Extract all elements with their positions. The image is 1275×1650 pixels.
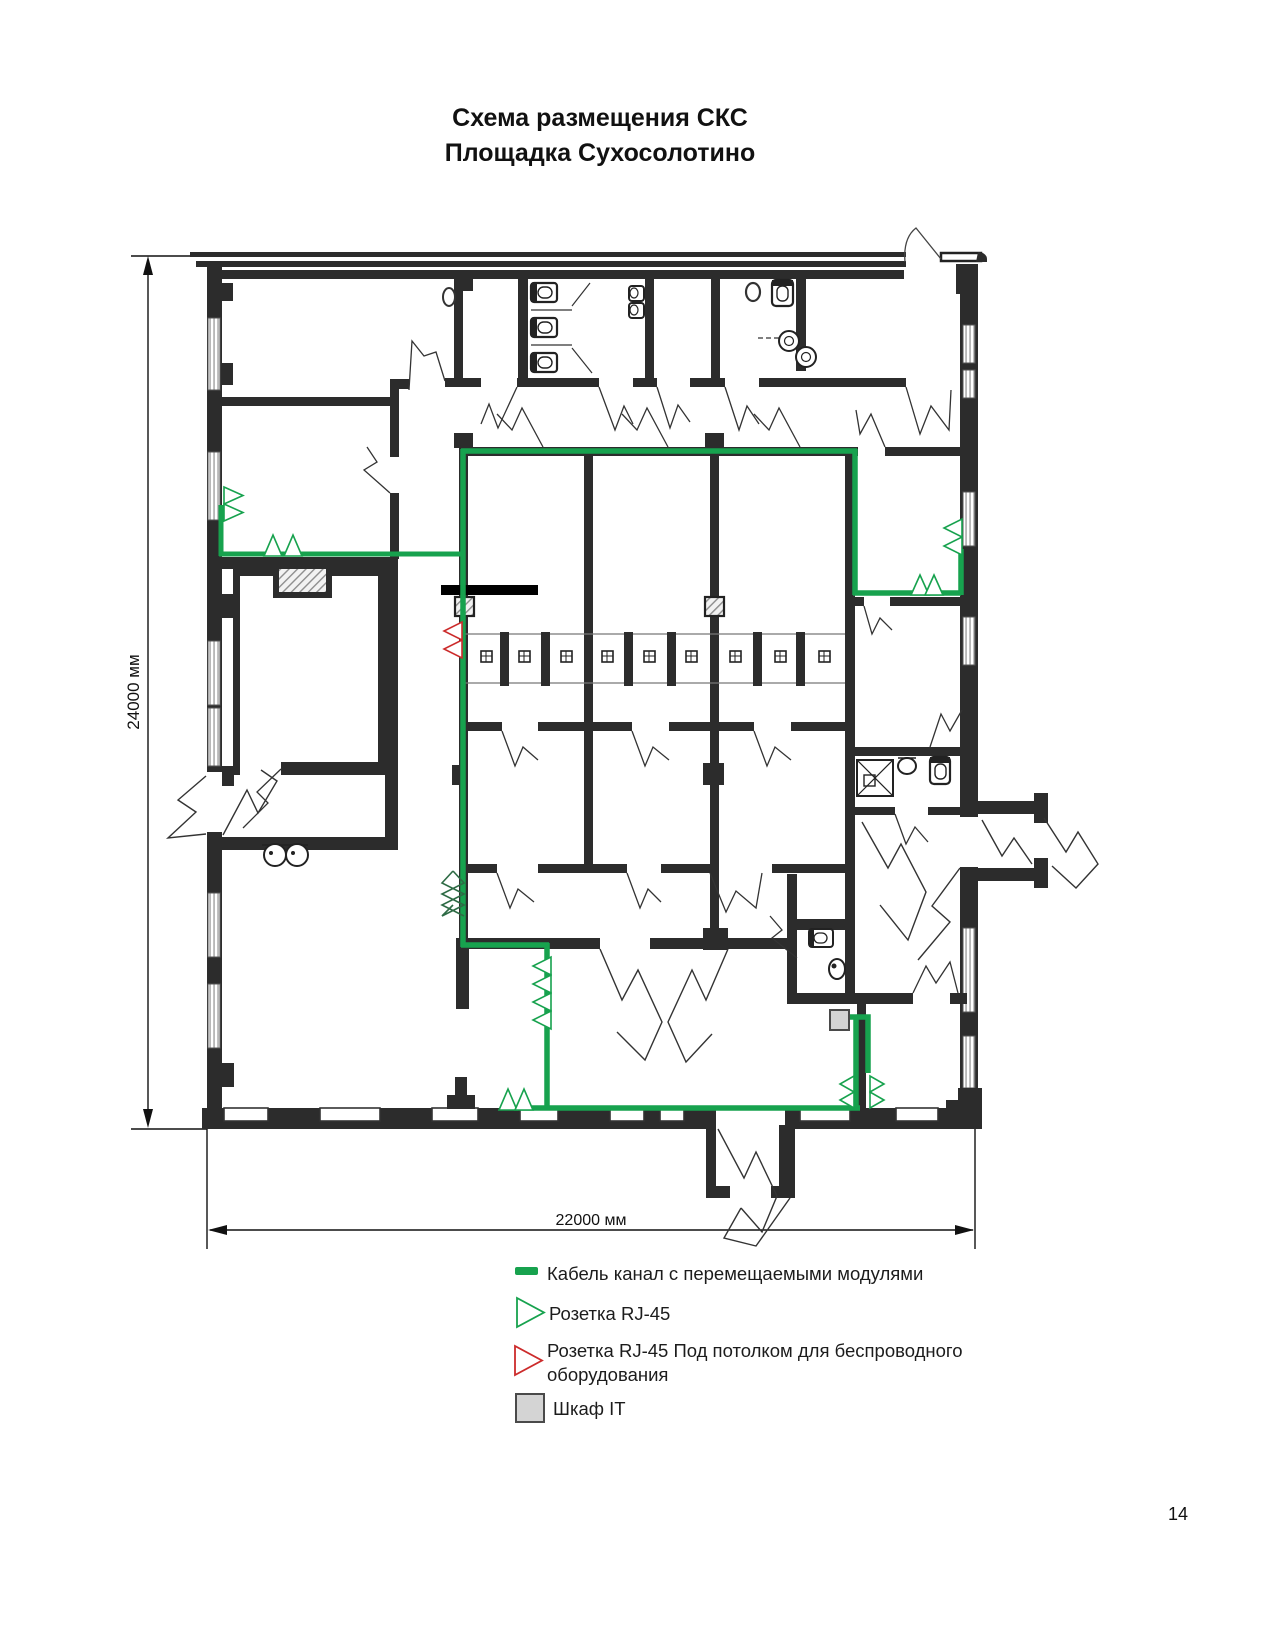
svg-text:22000 мм: 22000 мм xyxy=(556,1212,627,1229)
svg-text:Розетка RJ-45: Розетка RJ-45 xyxy=(549,1303,670,1324)
svg-text:Розетка RJ-45 Под потолком для: Розетка RJ-45 Под потолком для беспровод… xyxy=(547,1340,963,1361)
svg-text:14: 14 xyxy=(1168,1504,1188,1524)
svg-text:Кабель канал с перемещаемыми м: Кабель канал с перемещаемыми модулями xyxy=(547,1263,923,1284)
svg-text:Площадка Сухосолотино: Площадка Сухосолотино xyxy=(445,139,756,167)
svg-text:оборудования: оборудования xyxy=(547,1364,668,1385)
svg-text:24000 мм: 24000 мм xyxy=(124,654,143,729)
svg-text:Схема размещения СКС: Схема размещения СКС xyxy=(452,104,748,132)
svg-text:Шкаф IT: Шкаф IT xyxy=(553,1398,626,1419)
